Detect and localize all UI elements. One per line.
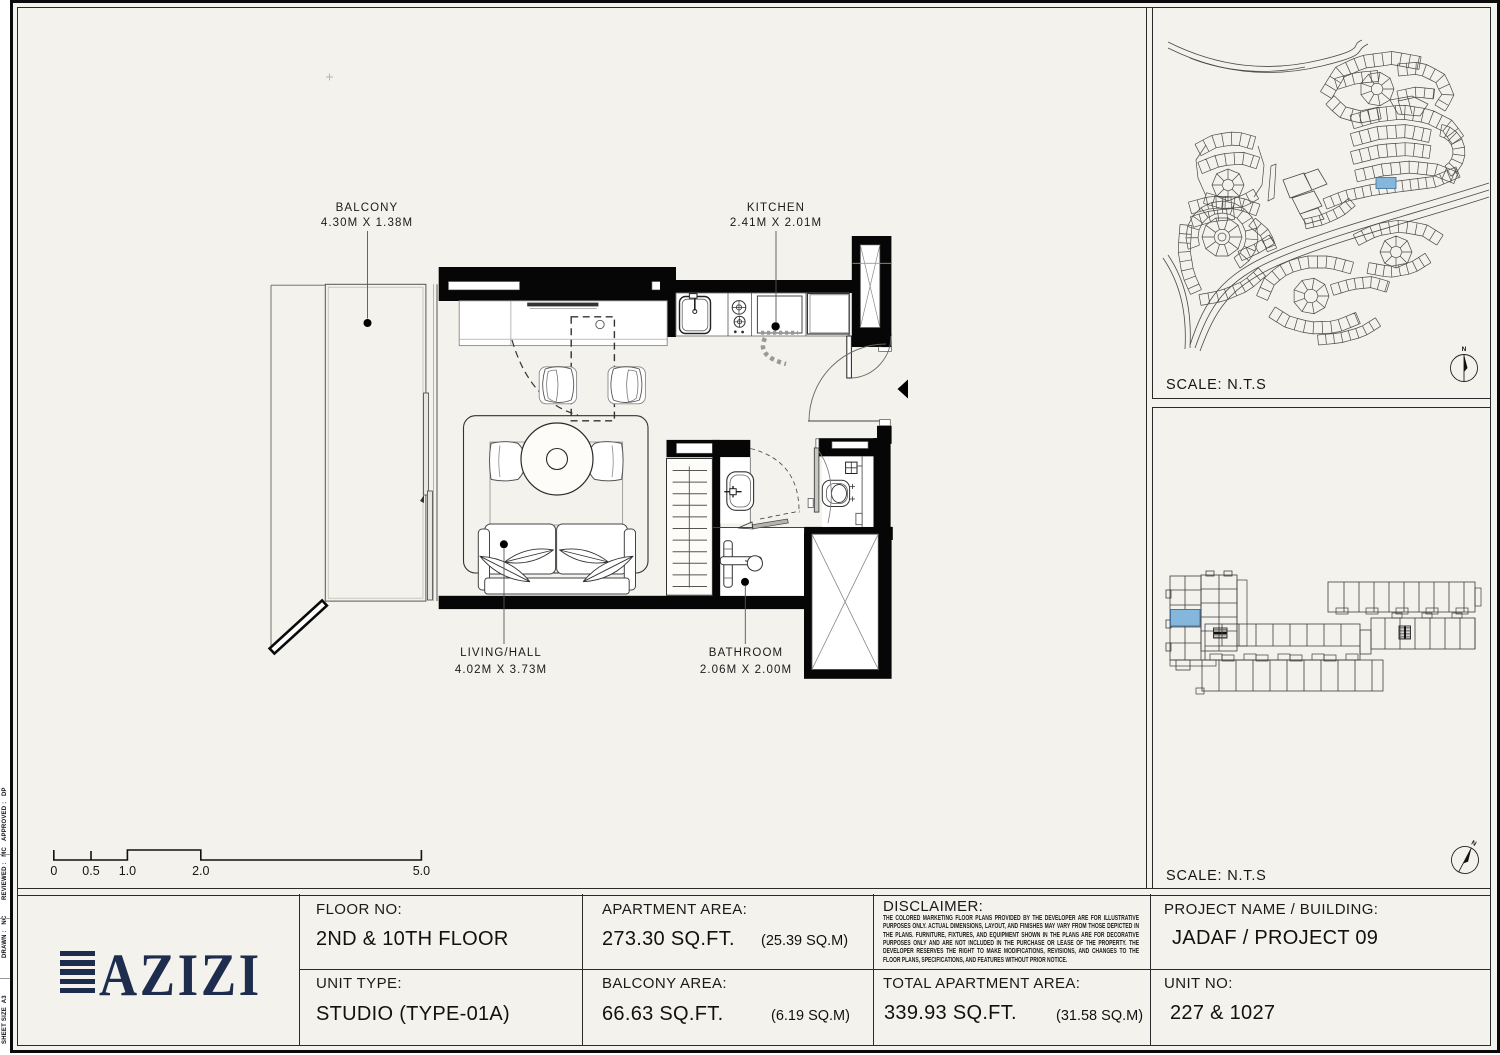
svg-text:N: N — [1470, 839, 1478, 848]
svg-text:N: N — [1462, 346, 1467, 353]
